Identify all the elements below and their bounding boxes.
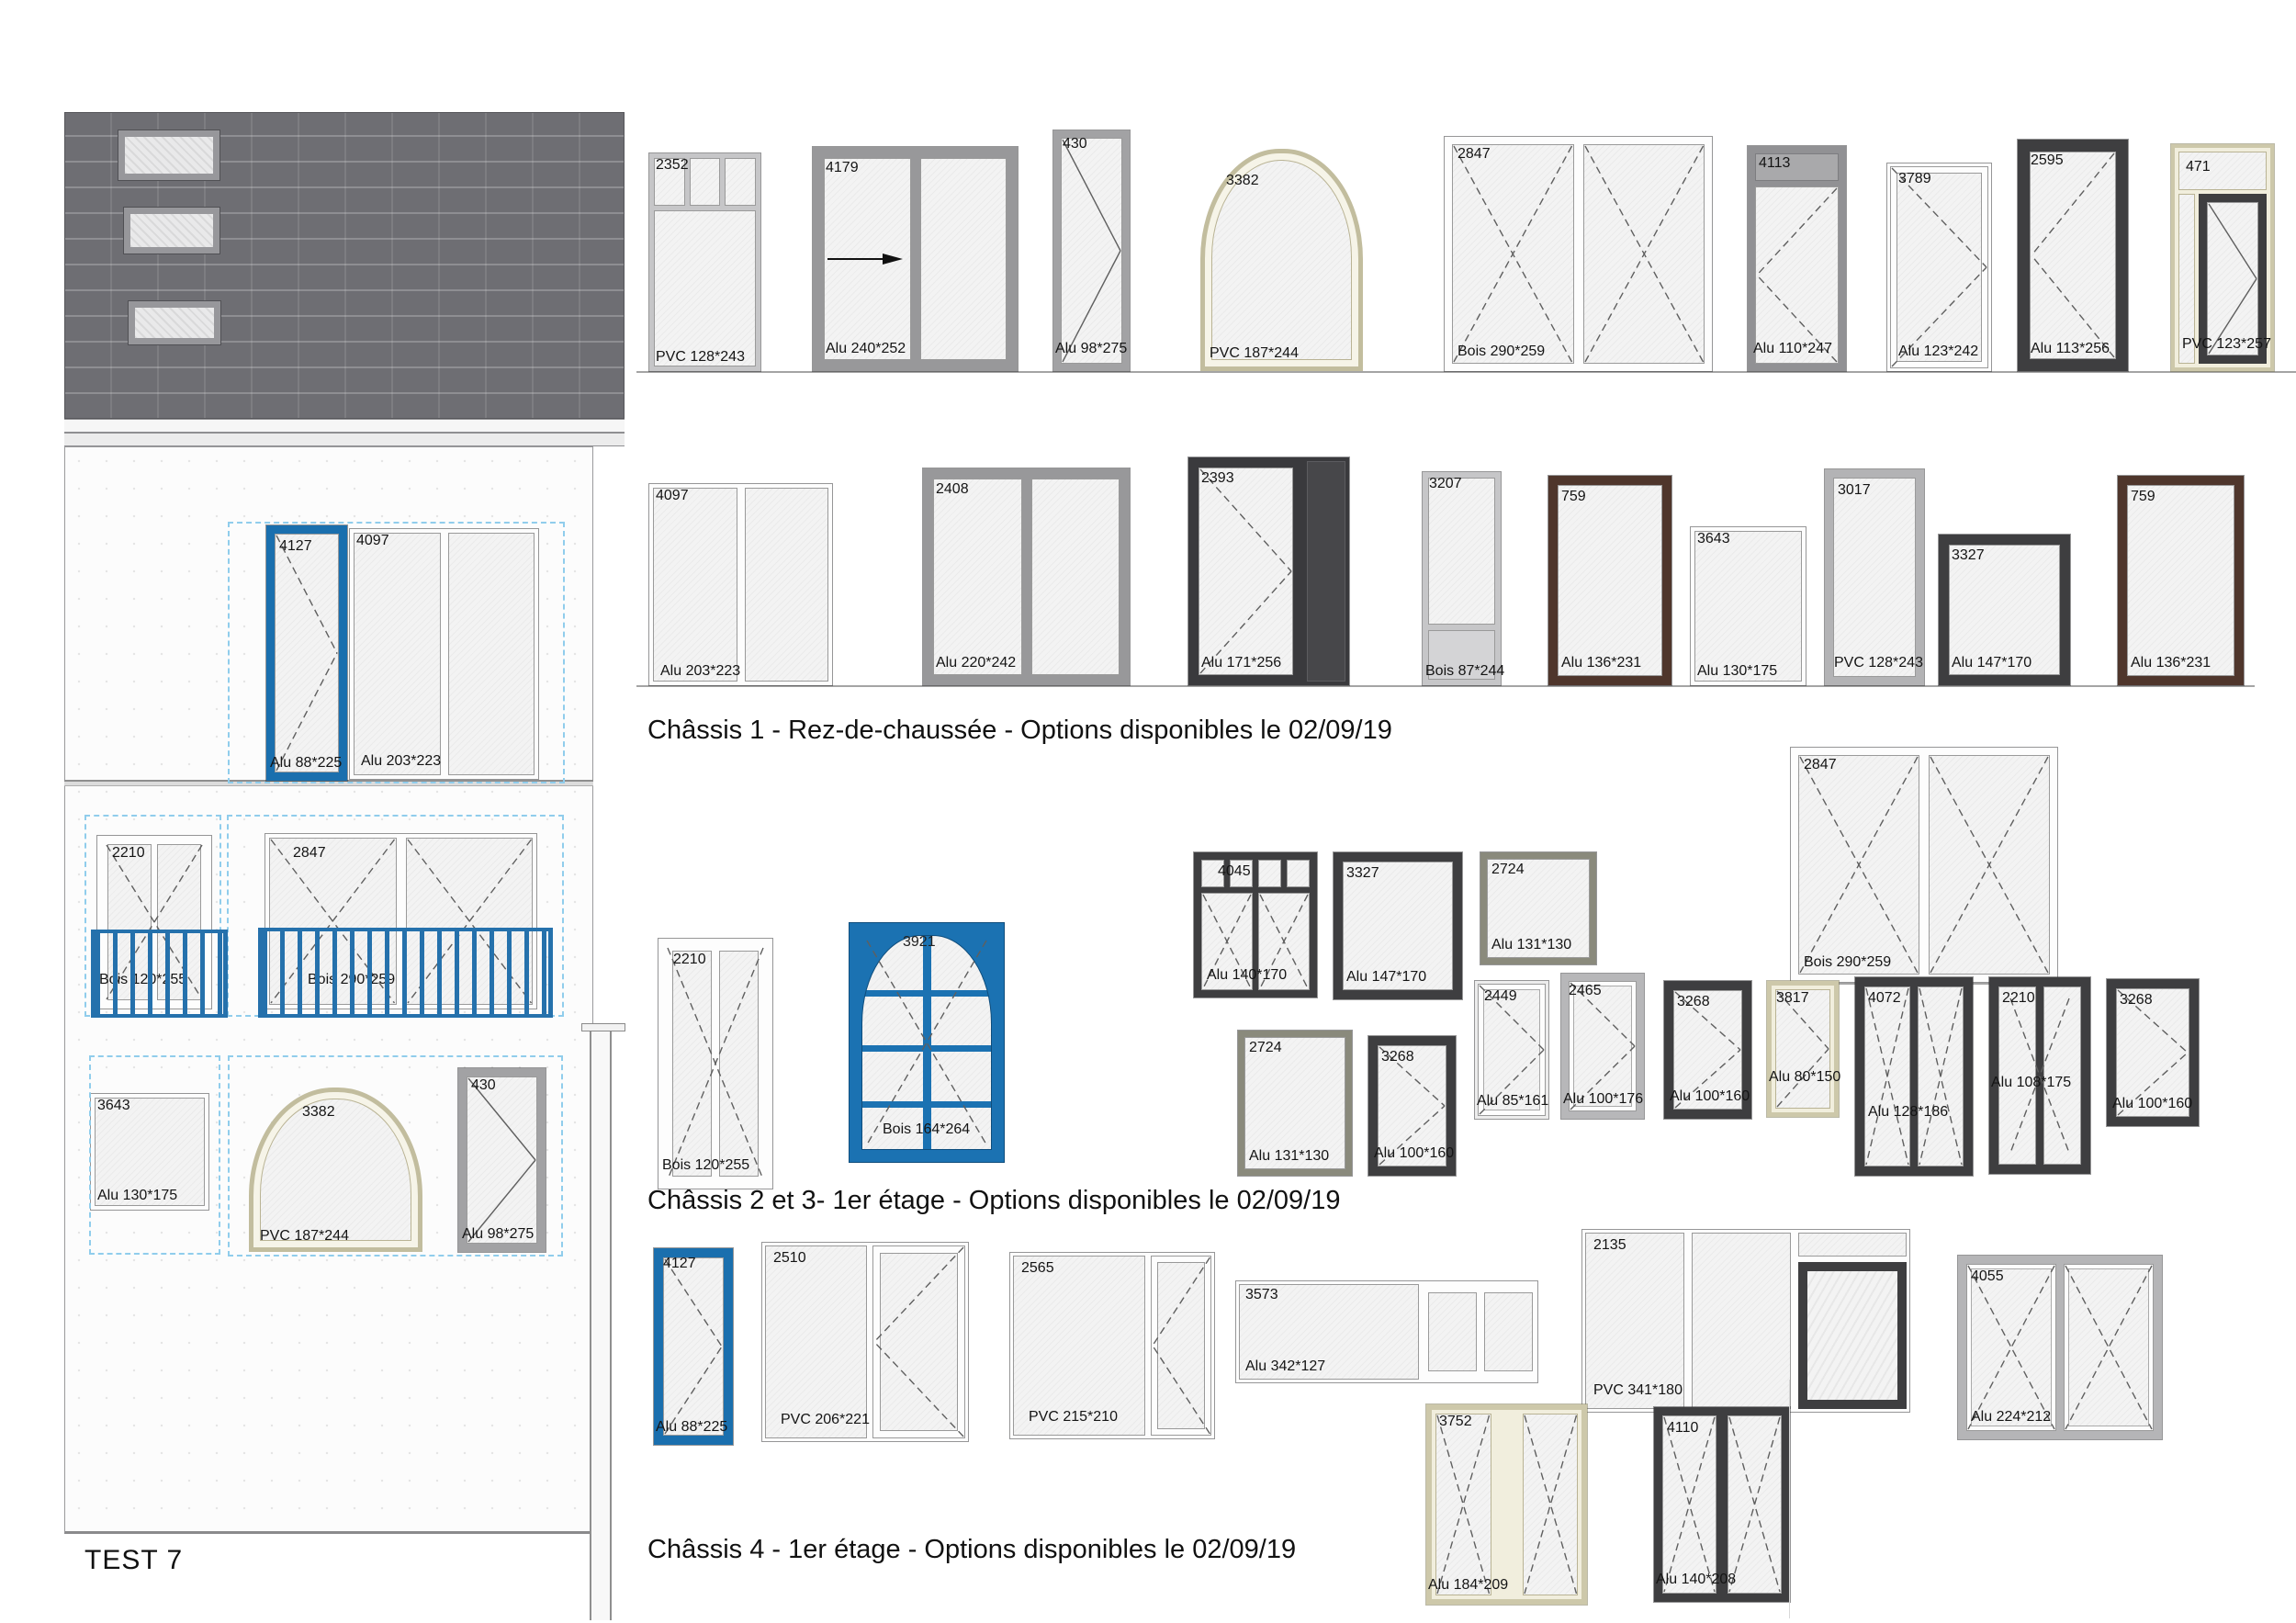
opening-direction-glyph [1967,1265,2055,1430]
window-pane [1929,755,2050,975]
option-id: 2724 [1249,1040,1282,1056]
option-id: 3017 [1838,482,1871,499]
window-option-2847[interactable]: 2847 Bois 290*259 [1445,137,1712,371]
dark-panel-column [1798,1233,1907,1409]
window-pane [1692,1233,1791,1409]
opening-direction-glyph [276,535,338,772]
door-glass [1755,186,1839,364]
option-dim: Alu 131*130 [1249,1148,1329,1165]
option-dim: Alu 108*175 [1991,1075,2071,1091]
option-id: 3643 [97,1098,130,1114]
option-id: 4055 [1971,1268,2004,1285]
window-pane [672,951,712,1177]
window-option-3268b[interactable]: 3268 Alu 100*160 [1664,981,1751,1119]
option-dim: Alu 100*176 [1563,1091,1643,1108]
opening-direction-glyph [1584,145,1705,363]
option-dim: Alu 147*170 [1346,969,1426,986]
window-option-4127[interactable]: 4127 Alu 88*225 [654,1248,733,1445]
window-option-2408[interactable]: 2408 Alu 220*242 [923,468,1130,685]
option-dim: Alu 140*208 [1656,1572,1736,1588]
door-frame [266,525,347,781]
option-dim: Alu 128*186 [1868,1104,1948,1121]
ground-line-row2 [636,685,2255,687]
opening-direction-glyph [1453,145,1573,363]
window-pane [1798,755,1919,975]
window-frame [1691,527,1806,685]
window-option-4110[interactable]: 4110 Alu 140*208 [1654,1407,1790,1602]
facade-door-4127[interactable]: 4127 Alu 88*225 [266,525,347,781]
window-pane [2064,1264,2154,1431]
option-id: 4127 [279,538,312,555]
opening-direction-glyph [1919,987,1963,1166]
door-glass [1428,478,1495,625]
balcony-railing [91,930,228,1018]
option-id: 4113 [1759,155,1790,172]
window-pane [725,158,756,206]
option-dim: Alu 100*160 [2112,1096,2192,1112]
door-glass [2207,202,2258,355]
option-dim: Alu 80*150 [1769,1069,1840,1086]
option-id: 3382 [1226,173,1259,189]
opening-direction-glyph [1799,756,1919,974]
door-glass [467,1076,537,1244]
option-dim: PVC 123*257 [2182,336,2271,353]
window-frame [1445,137,1712,371]
grid-pane [861,935,992,1150]
section1-title: Châssis 1 - Rez-de-chaussée - Options di… [647,716,1392,746]
option-id: 3327 [1952,547,1985,564]
window-pane [653,488,737,682]
opening-direction-glyph [873,1246,964,1437]
roof-window[interactable] [118,130,219,180]
dark-panel [1798,1262,1907,1409]
option-id: 430 [471,1077,496,1094]
option-id: 3789 [1898,171,1931,187]
window-pane [1428,1292,1477,1371]
door-frame [1887,163,1991,371]
solid-side-panel [1303,457,1349,685]
door-glass [1728,1415,1782,1594]
window-pane [1833,478,1916,677]
window-option-4097[interactable]: 4097 Alu 203*223 [649,484,832,685]
window-option-2847big[interactable]: 2847 Bois 290*259 [1791,748,2057,982]
option-id: 2352 [656,157,689,174]
door-frame [1426,1404,1587,1605]
window-option-4072[interactable]: 4072 Alu 128*186 [1855,977,1973,1176]
option-dim: Bois 87*244 [1425,663,1504,680]
option-id: 2847 [293,845,326,862]
option-dim: Alu 88*225 [270,755,342,772]
option-id: 3207 [1429,476,1462,492]
facade-door-430[interactable]: 430 Alu 98*275 [458,1068,546,1252]
option-id: 4179 [826,160,859,176]
door-frame [1053,130,1130,371]
option-id: 759 [2131,489,2155,505]
option-id: 2510 [773,1250,806,1267]
option-dim: Alu 203*223 [660,663,740,680]
window-option-4113[interactable]: 4113 Alu 110*247 [1748,146,1846,371]
op ening-direction-glyph [1663,1416,1716,1593]
door-frame [2018,140,2128,371]
option-dim: PVC 206*221 [781,1412,870,1428]
option-id: 2847 [1458,146,1491,163]
door-glass [1662,1415,1716,1594]
option-dim: Alu 136*231 [2131,655,2211,671]
door-glass [1890,166,1988,368]
opening-direction-glyph [1865,987,1909,1166]
window-option-3752[interactable]: 3752 Alu 184*209 [1426,1404,1587,1605]
window-pane [872,1245,965,1438]
option-id: 2465 [1569,983,1602,999]
option-dim: Alu 113*256 [2031,341,2110,357]
door-glass [1061,138,1122,364]
pane-row [1426,1284,1535,1380]
window-pane [654,210,756,366]
option-dim: Alu 140*170 [1207,967,1287,984]
window-pane [1287,860,1310,887]
option-dim: Alu 98*275 [462,1226,534,1243]
option-dim: Bois 164*264 [883,1121,970,1138]
option-dim: Alu 85*161 [1477,1093,1548,1110]
opening-direction-glyph [1756,187,1838,363]
window-option-2595[interactable]: 2595 Alu 113*256 [2018,140,2128,371]
window-pane [1864,986,1910,1167]
window-pane [745,488,829,682]
window-option-759[interactable]: 759 Alu 136*231 [1548,476,1671,685]
option-id: 4072 [1868,990,1901,1007]
opening-direction-glyph [1891,167,1987,367]
option-id: 4127 [663,1256,696,1272]
window-option-3327m[interactable]: 3327 Alu 147*170 [1334,852,1462,999]
option-dim: Alu 131*130 [1491,937,1571,953]
window-pane [1151,1256,1211,1436]
footer-label: TEST 7 [84,1545,183,1576]
door-frame [654,1248,733,1445]
option-id: 4045 [1218,863,1251,880]
option-id: 2135 [1593,1237,1626,1254]
window-option-4045[interactable]: 4045 Alu 140*170 [1194,852,1317,997]
window-option-2135[interactable]: 2135 PVC 341*180 [1582,1230,1909,1412]
window-option-3573[interactable]: 3573 Alu 342*127 [1236,1281,1537,1382]
opening-direction-glyph [1728,1416,1781,1593]
window-pane [1775,989,1830,1109]
window-option-2510[interactable]: 2510 PVC 206*221 [762,1243,968,1441]
window-option-759b[interactable]: 759 Alu 136*231 [2118,476,2244,685]
option-dim: Alu 240*252 [826,341,906,357]
leader-line [1789,1380,1790,1618]
door-leaf [1188,457,1303,685]
window-frame [1200,149,1363,371]
option-id: 2449 [1484,988,1517,1005]
option-id: 3327 [1346,865,1379,882]
opening-direction-glyph [1776,990,1829,1108]
window-frame [2118,476,2244,685]
opening-direction-glyph [1062,139,1121,363]
option-dim: Alu 130*175 [97,1188,177,1204]
window-pane [933,479,1022,675]
selection-box-floor0-left [89,1055,220,1255]
roof-window[interactable] [129,301,220,344]
door-frame [1748,146,1846,371]
opening-direction-glyph [664,1258,723,1435]
ground-line-row1 [636,371,2296,373]
opening-direction-glyph [2031,152,2115,358]
window-frame [649,484,832,685]
option-dim: Alu 98*275 [1055,341,1127,357]
door-frame [1188,457,1349,685]
balcony-railing [258,928,553,1018]
window-option-3207[interactable]: 3207 Bois 87*244 [1423,472,1501,685]
window-option-2210[interactable]: 2210 Bois 120*255 [658,939,772,1189]
option-id: 471 [2186,159,2211,175]
window-option-471[interactable]: 471 PVC 123*257 [2171,144,2274,371]
window-frame [1855,977,1973,1176]
window-option-3268a[interactable]: 3268 Alu 100*160 [1368,1036,1456,1176]
option-dim: PVC 187*244 [1210,345,1299,362]
window-pane [1583,144,1705,364]
option-dim: Alu 220*242 [936,655,1016,671]
option-id: 2724 [1491,862,1525,878]
window-option-3817[interactable]: 3817 Alu 80*150 [1767,981,1839,1117]
option-id: 3752 [1439,1414,1472,1430]
window-option-2724a[interactable]: 2724 Alu 131*130 [1480,852,1596,964]
option-dim: Bois 120*255 [662,1157,749,1174]
door-frame [458,1068,546,1252]
transom-pane [1798,1233,1907,1257]
window-option-2393[interactable]: 2393 Alu 171*256 [1188,457,1349,685]
door-glass [1435,1414,1491,1595]
option-id: 3268 [2120,992,2153,1009]
window-option-2352[interactable]: 2352 PVC 128*243 [649,153,760,371]
section2-title: Châssis 2 et 3- 1er étage - Options disp… [647,1186,1340,1216]
option-id: 2210 [673,952,706,968]
window-option-3789[interactable]: 3789 Alu 123*242 [1887,163,1991,371]
window-frame [1548,476,1671,685]
window-pane [765,1245,867,1438]
option-id: 2210 [2002,990,2035,1007]
option-dim: Bois 290*259 [1804,954,1891,971]
opening-direction-glyph [1152,1257,1210,1435]
window-frame [658,939,772,1189]
option-id: 4110 [1667,1420,1698,1437]
window-frame [1825,469,1924,685]
door-frame [1423,472,1501,685]
window-frame [923,468,1130,685]
window-pane [1452,144,1574,364]
facade-fascia [64,419,625,433]
door-glass [663,1257,724,1436]
option-dim: Alu 88*225 [656,1419,727,1436]
option-id: 2565 [1021,1260,1054,1277]
option-id: 3382 [302,1104,335,1121]
window-option-2210d[interactable]: 2210 Alu 108*175 [1989,977,2090,1174]
option-dim: Alu 136*231 [1561,655,1641,671]
option-id: 2847 [1804,757,1837,773]
window-pane [1966,1264,2056,1431]
facade-fascia [64,433,625,446]
opening-direction-glyph [1930,756,2049,974]
option-dim: PVC 215*210 [1029,1409,1118,1426]
window-pane [1694,531,1802,682]
window-option-3643[interactable]: 3643 Alu 130*175 [1691,527,1806,685]
window-option-4055[interactable]: 4055 Alu 224*212 [1958,1256,2162,1439]
option-id: 4097 [356,533,389,549]
window-option-2449[interactable]: 2449 Alu 85*161 [1475,981,1548,1119]
option-dim: Alu 130*175 [1697,663,1777,680]
door-glass [2030,152,2116,359]
option-dim: Alu 100*160 [1374,1145,1454,1162]
option-id: 3921 [903,934,936,951]
option-dim: PVC 128*243 [1834,655,1923,671]
downpipe-bracket [581,1023,625,1031]
option-id: 3573 [1245,1287,1278,1303]
window-pane [1484,1292,1533,1371]
door-glass [275,534,339,772]
opening-direction-glyph [1199,468,1292,674]
roof-window[interactable] [124,208,219,254]
door-glass [1523,1414,1579,1595]
option-id: 2210 [112,845,145,862]
option-id: 3643 [1697,531,1730,547]
option-dim: Alu 342*127 [1245,1358,1325,1375]
option-dim: PVC 187*244 [260,1228,349,1245]
window-option-3921[interactable]: 3921 Bois 164*264 [850,923,1004,1162]
window-option-430[interactable]: 430 Alu 98*275 [1053,130,1130,371]
window-pane [2127,485,2234,676]
window-pane [1918,986,1964,1167]
option-dim: Alu 171*256 [1201,655,1281,671]
window-option-3268c[interactable]: 3268 Alu 100*160 [2107,979,2199,1126]
option-id: 3268 [1381,1049,1414,1065]
option-id: 2393 [1201,470,1234,487]
window-option-3017[interactable]: 3017 PVC 128*243 [1825,469,1924,685]
window-pane [719,951,759,1177]
window-pane [920,158,1007,360]
option-id: 2408 [936,481,969,498]
window-pane [1211,160,1352,360]
window-frame [649,153,760,371]
opening-direction-glyph [1524,1414,1578,1595]
option-dim: Alu 224*212 [1971,1409,2051,1426]
option-id: 430 [1063,136,1087,152]
opening-direction-glyph [467,1077,536,1243]
window-option-4179[interactable]: 4179 Alu 240*252 [813,147,1018,371]
opening-direction-glyph [1436,1414,1491,1595]
option-dim: Alu 110*247 [1753,341,1832,357]
drawing-canvas: 4127 Alu 88*225 4097 Alu 203*223 2210 Bo… [0,0,2296,1623]
option-id: 4097 [656,488,689,504]
opening-direction-glyph [2208,203,2257,355]
option-dim: Alu 123*242 [1898,344,1978,360]
option-dim: Bois 290*259 [1458,344,1545,360]
window-pane [690,158,721,206]
option-dim: PVC 128*243 [656,349,745,366]
option-dim: Alu 147*170 [1952,655,2032,671]
window-pane [1258,860,1281,887]
downpipe [590,1031,612,1620]
window-pane [1031,479,1120,675]
option-id: 3268 [1677,994,1710,1010]
center-stile [1495,1410,1519,1599]
window-option-2724b[interactable]: 2724 Alu 131*130 [1238,1031,1352,1176]
opening-direction-glyph [2065,1265,2153,1430]
door-glass [1199,468,1293,675]
window-option-2565[interactable]: 2565 PVC 215*210 [1010,1253,1214,1438]
window-option-3327[interactable]: 3327 Alu 147*170 [1939,535,2070,685]
option-id: 759 [1561,489,1586,505]
option-id: 2595 [2031,152,2064,169]
option-dim: Alu 203*223 [361,753,441,770]
section3-title: Châssis 4 - 1er étage - Options disponib… [647,1535,1296,1565]
option-id: 3817 [1776,990,1809,1007]
window-frame [1791,748,2057,982]
option-dim: Alu 184*209 [1428,1577,1508,1594]
window-pane [1558,485,1662,676]
window-frame [813,147,1018,371]
window-option-2465[interactable]: 2465 Alu 100*176 [1561,974,1644,1119]
option-dim: Alu 100*160 [1670,1088,1750,1105]
slide-direction-arrow [826,252,905,266]
window-pane [824,158,911,360]
option-dim: PVC 341*180 [1593,1382,1683,1399]
window-option-3382[interactable]: 3382 PVC 187*244 [1200,149,1363,371]
